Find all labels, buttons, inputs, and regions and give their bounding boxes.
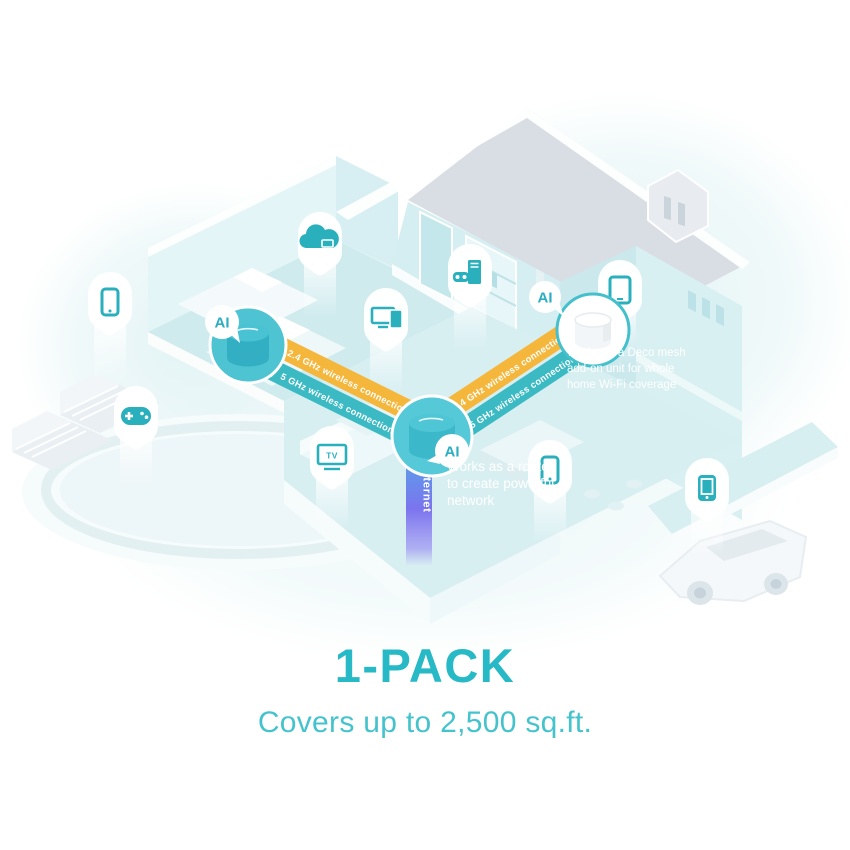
dormer-window [664,196,671,220]
controller-dpad [128,412,131,420]
device-pin-tv: TV [310,426,354,528]
attic-door [420,212,452,300]
smartphone-filled-icon [698,475,716,501]
deco-cylinder-icon [575,313,611,349]
device-pin-smartphone-filled [685,458,729,556]
coverage-subtitle: Covers up to 2,500 sq.ft. [0,706,850,740]
device-pin-game-controller [114,386,158,488]
device-pin-smartphone [528,440,572,542]
device-pin-pc-vr [448,244,492,348]
mesh-annotation-line: home Wi-Fi coverage [567,379,676,391]
stool [608,502,624,511]
car-hub [694,588,706,599]
dormer-window [678,202,685,226]
device-pin-monitor-tablet [364,288,408,392]
tablet-shape [390,310,402,328]
ai-badge-label: AI [538,290,553,307]
phone-button [706,496,709,499]
mesh-annotation-line: Works as a Deco mesh [567,347,686,359]
phone-button [109,310,112,313]
stool [626,480,642,489]
vr-lens [463,275,467,279]
router-annotation-line: network [447,493,495,508]
game-controller-icon [121,407,151,425]
router-annotation-line: Works as a router [447,459,554,474]
tv-icon-label: TV [326,451,338,461]
product-marketing-image: TV [0,0,850,850]
device-pin-cloud [298,212,342,318]
mesh-annotation: Works as a Deco mesh add-on unit for who… [567,347,686,391]
controller-button [140,412,144,416]
stool [584,490,600,499]
vr-goggles [453,272,469,282]
pack-title: 1-PACK [0,638,850,693]
router-annotation-line: to create powerful [447,476,554,491]
car-hub [771,579,782,589]
controller-button [145,415,149,419]
cylinder-top [409,414,455,432]
pack-headline: 1-PACK Covers up to 2,500 sq.ft. [0,638,850,740]
mesh-annotation-line: add-on unit for whole [567,363,674,375]
vr-lens [456,275,460,279]
device-pin-smartphone [88,272,132,382]
ai-badge-label: AI [215,315,230,332]
cylinder-top [575,313,611,327]
books [492,272,497,289]
ai-badge-label: AI [445,444,460,461]
storage-box [322,240,333,247]
